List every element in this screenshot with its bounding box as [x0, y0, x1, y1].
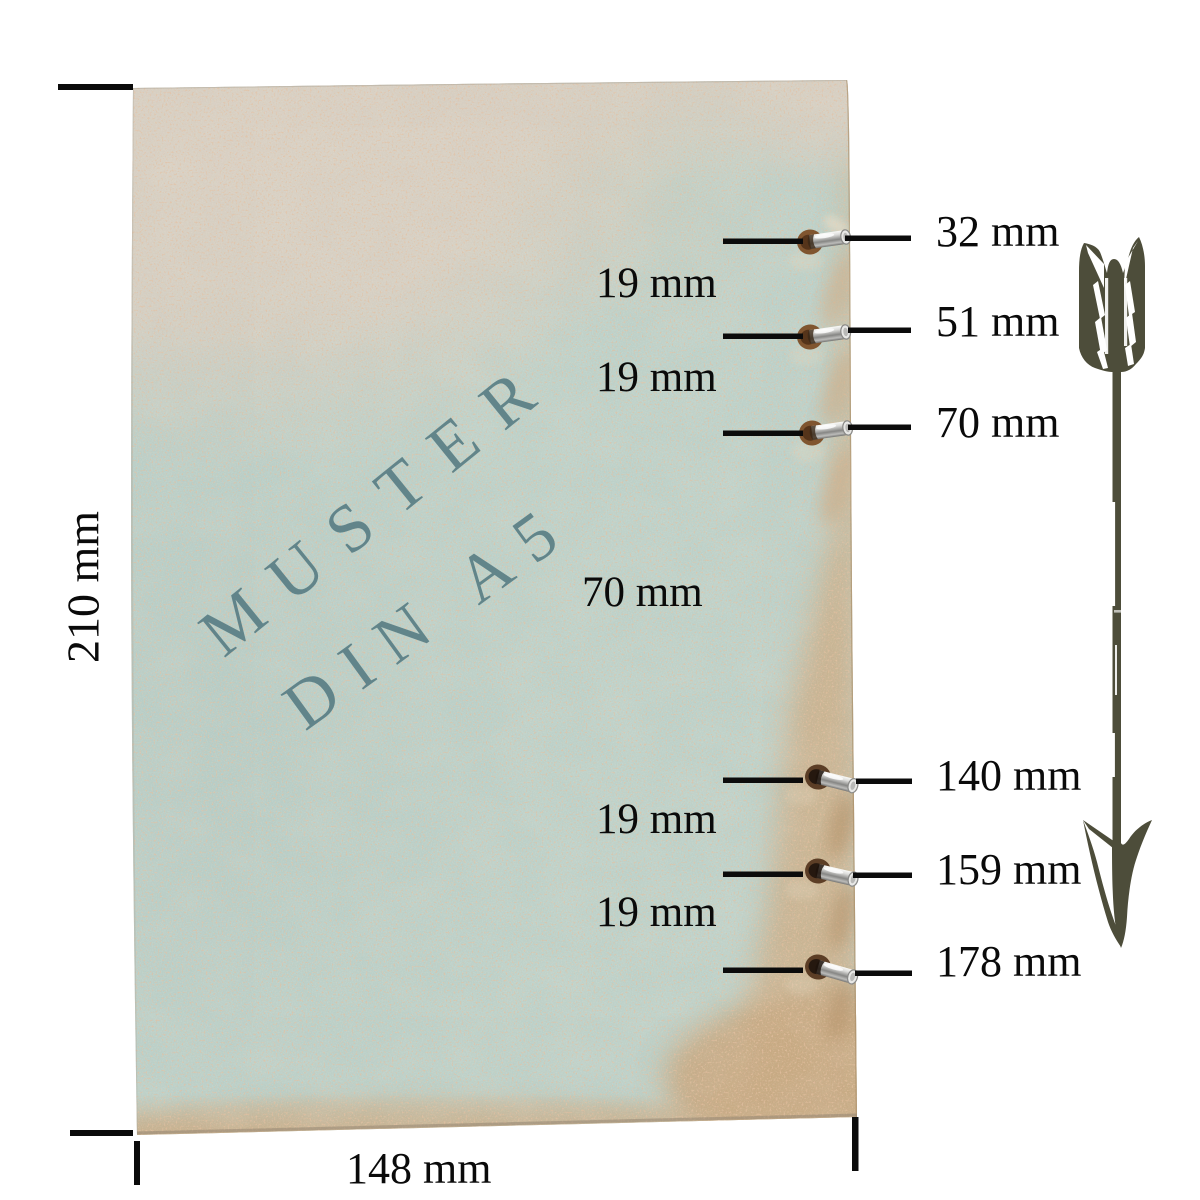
svg-text:19 mm: 19 mm	[596, 354, 717, 401]
svg-text:210 mm: 210 mm	[58, 511, 109, 663]
svg-text:19 mm: 19 mm	[596, 796, 717, 843]
svg-text:148 mm: 148 mm	[346, 1144, 491, 1193]
svg-text:51 mm: 51 mm	[936, 297, 1059, 346]
svg-text:19 mm: 19 mm	[596, 889, 717, 936]
svg-text:140 mm: 140 mm	[936, 751, 1081, 800]
svg-text:70 mm: 70 mm	[936, 398, 1059, 447]
svg-text:70 mm: 70 mm	[582, 569, 703, 616]
svg-text:178 mm: 178 mm	[936, 937, 1081, 986]
svg-text:32 mm: 32 mm	[936, 207, 1059, 256]
svg-text:19 mm: 19 mm	[596, 260, 717, 307]
svg-text:159 mm: 159 mm	[936, 845, 1081, 894]
